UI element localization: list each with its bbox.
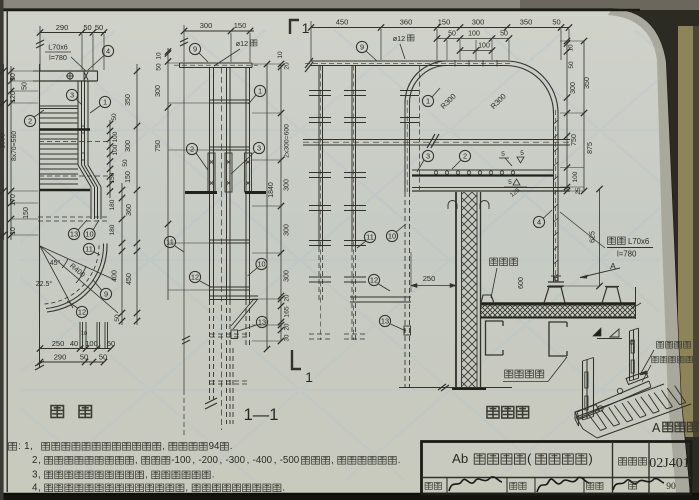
svg-text:5: 5 <box>508 179 512 186</box>
svg-text:,: , <box>331 455 334 466</box>
svg-text:250: 250 <box>52 339 65 348</box>
svg-text:): ) <box>588 451 592 466</box>
svg-text:13: 13 <box>70 230 78 239</box>
svg-text:290: 290 <box>56 23 69 32</box>
svg-text:100: 100 <box>468 31 480 38</box>
svg-text:50: 50 <box>568 61 575 69</box>
svg-text:12: 12 <box>370 276 378 285</box>
svg-text:300: 300 <box>472 18 485 27</box>
svg-text:50: 50 <box>114 314 121 322</box>
svg-text:13: 13 <box>381 317 389 326</box>
svg-text:100: 100 <box>478 43 490 50</box>
svg-text:L70x6: L70x6 <box>628 237 649 246</box>
svg-text:,: , <box>162 441 165 452</box>
svg-text:1: 1 <box>305 369 313 385</box>
svg-text:360: 360 <box>400 18 413 27</box>
svg-text:50: 50 <box>122 159 129 167</box>
svg-text:(: ( <box>527 451 532 466</box>
svg-text:300: 300 <box>284 270 291 282</box>
svg-text:350: 350 <box>584 77 591 89</box>
svg-text:5: 5 <box>520 150 524 157</box>
svg-text:-500: -500 <box>280 455 300 466</box>
svg-text:750: 750 <box>155 140 162 152</box>
svg-text:3: 3 <box>70 91 74 100</box>
svg-text:11: 11 <box>85 245 93 254</box>
svg-text:450: 450 <box>126 273 133 285</box>
svg-text:12: 12 <box>191 273 199 282</box>
svg-text:50: 50 <box>83 23 91 32</box>
svg-text:4: 4 <box>537 218 541 227</box>
svg-text:45°: 45° <box>50 259 61 267</box>
svg-text:250: 250 <box>423 274 436 283</box>
svg-text:100: 100 <box>112 144 119 155</box>
svg-text:10: 10 <box>81 331 87 337</box>
svg-text:50: 50 <box>552 18 560 27</box>
svg-text:300: 300 <box>200 21 213 30</box>
svg-text:1: 1 <box>24 441 29 452</box>
svg-text:350: 350 <box>125 94 132 106</box>
svg-text:150: 150 <box>109 172 116 183</box>
svg-text:,: , <box>185 483 188 494</box>
svg-text:,: , <box>38 455 41 466</box>
svg-text:9: 9 <box>104 290 108 299</box>
svg-text:11: 11 <box>166 238 174 247</box>
svg-text:10: 10 <box>568 44 575 52</box>
svg-text:120: 120 <box>10 91 17 103</box>
svg-text:150: 150 <box>125 171 132 183</box>
svg-text:,: , <box>274 455 277 466</box>
svg-text:11: 11 <box>366 233 374 242</box>
svg-text:170: 170 <box>10 194 17 206</box>
svg-text:1—1: 1—1 <box>244 406 279 424</box>
svg-text:150: 150 <box>234 21 247 30</box>
svg-text:300: 300 <box>284 179 291 191</box>
svg-text:50: 50 <box>22 82 29 90</box>
svg-text:L70x6: L70x6 <box>48 43 68 52</box>
svg-text:150: 150 <box>23 207 30 219</box>
svg-text:.: . <box>230 441 233 452</box>
svg-text:,: , <box>38 470 41 481</box>
svg-text:10: 10 <box>156 52 163 60</box>
svg-text:ø12: ø12 <box>393 34 405 43</box>
svg-text:1840: 1840 <box>268 182 275 198</box>
svg-text:,: , <box>38 483 41 494</box>
svg-text:ø12: ø12 <box>236 39 248 48</box>
svg-text:,: , <box>145 470 148 481</box>
svg-text:360: 360 <box>126 204 133 216</box>
svg-text:20: 20 <box>284 62 291 70</box>
svg-text:350: 350 <box>520 18 533 27</box>
svg-text:20: 20 <box>284 323 291 330</box>
svg-text:10: 10 <box>277 51 284 59</box>
svg-text:300: 300 <box>284 224 291 236</box>
svg-text:l=780: l=780 <box>49 53 67 62</box>
svg-text:50: 50 <box>95 23 103 32</box>
svg-text:,: , <box>135 455 138 466</box>
svg-text:1: 1 <box>258 87 262 96</box>
svg-text:50: 50 <box>448 31 456 38</box>
svg-text:2: 2 <box>463 152 467 161</box>
svg-text:-400: -400 <box>253 455 273 466</box>
svg-text:180: 180 <box>109 224 116 235</box>
svg-text:100: 100 <box>572 171 579 182</box>
svg-text:-300: -300 <box>226 455 246 466</box>
svg-text:1000: 1000 <box>0 133 7 149</box>
svg-text:9: 9 <box>193 45 197 54</box>
svg-text:8x70=560: 8x70=560 <box>11 131 18 161</box>
svg-text:,: , <box>192 455 195 466</box>
svg-text:50: 50 <box>99 353 107 362</box>
svg-text:-100: -100 <box>171 455 191 466</box>
svg-text:2: 2 <box>28 117 32 126</box>
svg-text:2x300=600: 2x300=600 <box>284 124 291 158</box>
svg-text:3: 3 <box>426 152 430 161</box>
svg-text:30: 30 <box>284 334 291 341</box>
svg-text:10: 10 <box>257 260 265 269</box>
svg-text:4: 4 <box>106 47 110 56</box>
svg-text:20: 20 <box>284 294 291 301</box>
svg-text:300: 300 <box>155 85 162 97</box>
svg-text:10: 10 <box>388 232 396 241</box>
svg-text:1: 1 <box>302 20 310 36</box>
svg-text:3: 3 <box>257 144 261 153</box>
svg-text:150: 150 <box>438 18 451 27</box>
svg-text::: : <box>18 441 21 452</box>
svg-text:3: 3 <box>32 470 37 481</box>
svg-text:.: . <box>212 470 215 481</box>
svg-text:2: 2 <box>190 145 194 154</box>
svg-text:,: , <box>247 455 250 466</box>
svg-text:l=780: l=780 <box>617 250 637 259</box>
svg-text:625: 625 <box>590 231 597 243</box>
svg-text:50: 50 <box>80 353 88 362</box>
svg-text:600: 600 <box>518 277 525 289</box>
svg-text:25: 25 <box>575 187 582 194</box>
svg-text:180: 180 <box>109 199 116 210</box>
svg-text:-200: -200 <box>198 455 218 466</box>
svg-text:10: 10 <box>85 230 93 239</box>
svg-text:22.5°: 22.5° <box>36 280 53 288</box>
svg-text:1: 1 <box>426 97 430 106</box>
svg-text:40: 40 <box>70 339 78 348</box>
svg-text:100: 100 <box>112 131 119 142</box>
svg-text:.: . <box>398 455 401 466</box>
svg-text:Ab: Ab <box>452 451 468 466</box>
svg-text:50: 50 <box>156 63 163 71</box>
svg-text:300: 300 <box>125 140 132 152</box>
svg-text:12: 12 <box>78 308 86 317</box>
svg-text:50: 50 <box>111 113 118 121</box>
svg-text:94: 94 <box>209 441 220 452</box>
svg-text:A: A <box>652 421 661 435</box>
svg-text:50: 50 <box>10 73 17 81</box>
svg-text:400: 400 <box>112 270 119 282</box>
svg-text:100: 100 <box>85 339 98 348</box>
svg-text:,: , <box>30 441 33 452</box>
svg-text:9: 9 <box>360 43 364 52</box>
svg-text:02J401: 02J401 <box>649 456 689 471</box>
svg-text:300: 300 <box>570 82 577 94</box>
svg-text:750: 750 <box>571 134 578 146</box>
svg-text:5: 5 <box>501 151 505 158</box>
svg-text:.: . <box>282 483 285 494</box>
svg-text:450: 450 <box>336 18 349 27</box>
svg-text:290: 290 <box>54 353 67 362</box>
svg-text:90: 90 <box>666 482 676 492</box>
svg-text:50: 50 <box>500 31 508 38</box>
svg-text:165: 165 <box>284 306 291 318</box>
svg-text:50: 50 <box>107 339 115 348</box>
svg-text:1: 1 <box>103 98 107 107</box>
svg-text:2: 2 <box>32 455 37 466</box>
svg-text:10: 10 <box>10 227 17 235</box>
svg-text:,: , <box>220 455 223 466</box>
svg-text:875: 875 <box>587 142 594 154</box>
